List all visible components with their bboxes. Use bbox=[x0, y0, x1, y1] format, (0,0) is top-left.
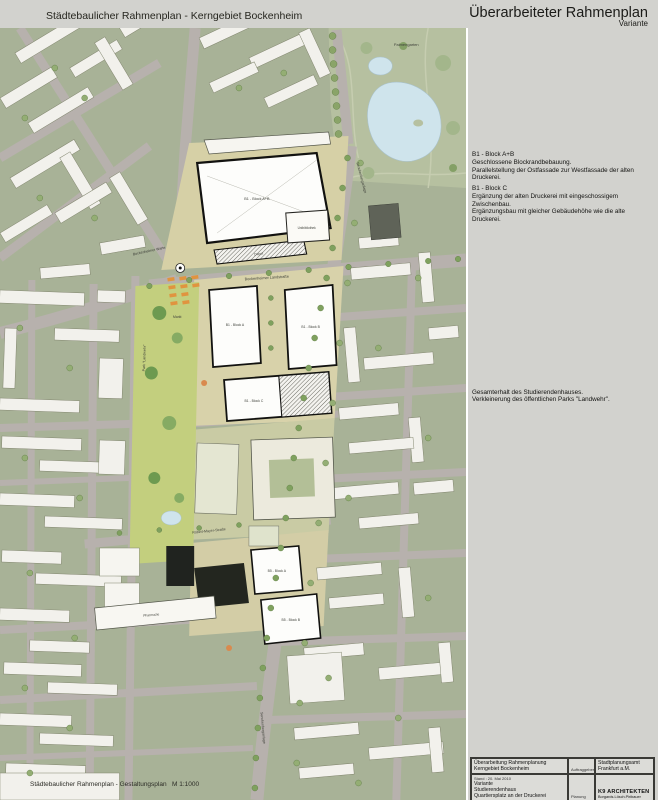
label-b5-block-b: B5 - Block B bbox=[281, 618, 300, 622]
annotation-line: Verkleinerung des öffentlichen Parks "La… bbox=[472, 396, 654, 403]
client-label: Auftraggeber: bbox=[571, 767, 595, 772]
annotation-line: Parallelstellung der Ostfassade zur West… bbox=[472, 167, 654, 182]
project-line2: Kerngebiet Bockenheim bbox=[474, 766, 565, 772]
planner-label: Planung bbox=[571, 794, 586, 799]
label-b1-block-c: B1 - Block C bbox=[245, 399, 264, 403]
annotation-line: Geschlossene Blockrandbebauung. bbox=[472, 159, 654, 166]
variant-cell: Stand : 20. Mai 2010 Variante Studierend… bbox=[471, 774, 568, 800]
label-unibibliothek: Unibibliothek bbox=[298, 226, 317, 230]
tower-building bbox=[166, 546, 194, 586]
planner-label-cell: Planung bbox=[568, 774, 595, 800]
plan-map[interactable]: Palmengarten Bockenheimer Warte Markt Bo… bbox=[0, 28, 468, 800]
annotation-line: Gesamterhalt des Studierendenhauses. bbox=[472, 389, 654, 396]
project-cell: Überarbeitung Rahmenplanung Kerngebiet B… bbox=[471, 758, 568, 774]
title-block: Überarbeitung Rahmenplanung Kerngebiet B… bbox=[470, 757, 655, 800]
planner-cell: K9 ARCHITEKTEN Borgards.Lösch.Piribauer bbox=[595, 774, 654, 800]
label-palmengarten: Palmengarten bbox=[394, 42, 419, 47]
label-markt: Markt bbox=[173, 315, 181, 319]
dark-building bbox=[368, 203, 401, 239]
annotation-studierendenhaus: Gesamterhalt des Studierendenhauses. Ver… bbox=[472, 389, 654, 404]
sheet-title-left: Städtebaulicher Rahmenplan - Kerngebiet … bbox=[46, 10, 302, 22]
annotation-line: Ergänzung der alten Druckerei mit einges… bbox=[472, 193, 654, 208]
client-label-cell: Auftraggeber: bbox=[568, 758, 595, 774]
map-scale-caption: Städtebaulicher Rahmenplan - Gestaltungs… bbox=[30, 781, 199, 788]
annotation-title: B1 - Block A+B bbox=[472, 151, 654, 158]
annotation-line: Ergänzungsbau mit gleicher Gebäudehöhe w… bbox=[472, 208, 654, 223]
client-cell: Stadtplanungsamt Frankfurt a.M. bbox=[595, 758, 654, 774]
map-footer-label: Städtebaulicher Rahmenplan - Gestaltungs… bbox=[30, 781, 167, 788]
annotation-block-ab: B1 - Block A+B Geschlossene Blockrandbeb… bbox=[472, 151, 654, 182]
client-line2: Frankfurt a.M. bbox=[598, 766, 651, 772]
label-b1-block-b: B1 - Block B bbox=[301, 325, 320, 329]
label-b1-block-a: B1 - Block A bbox=[226, 323, 245, 327]
map-svg: Palmengarten Bockenheimer Warte Markt Bo… bbox=[0, 28, 466, 800]
map-scale: M 1:1000 bbox=[172, 781, 199, 788]
planner-line2: Borgards.Lösch.Piribauer bbox=[598, 795, 651, 799]
annotation-block-c: B1 - Block C Ergänzung der alten Drucker… bbox=[472, 185, 654, 223]
annotation-title: B1 - Block C bbox=[472, 185, 654, 192]
label-b1-block-ab: B1 - Block A+B bbox=[244, 197, 270, 201]
plan-sheet: Städtebaulicher Rahmenplan - Kerngebiet … bbox=[0, 0, 658, 800]
variant-line3: Quartiersplatz an der Druckerei bbox=[474, 793, 565, 799]
sheet-title-right: Überarbeiteter Rahmenplan Variante bbox=[469, 5, 648, 28]
label-b5-block-a: B5 - Block A bbox=[268, 569, 287, 573]
